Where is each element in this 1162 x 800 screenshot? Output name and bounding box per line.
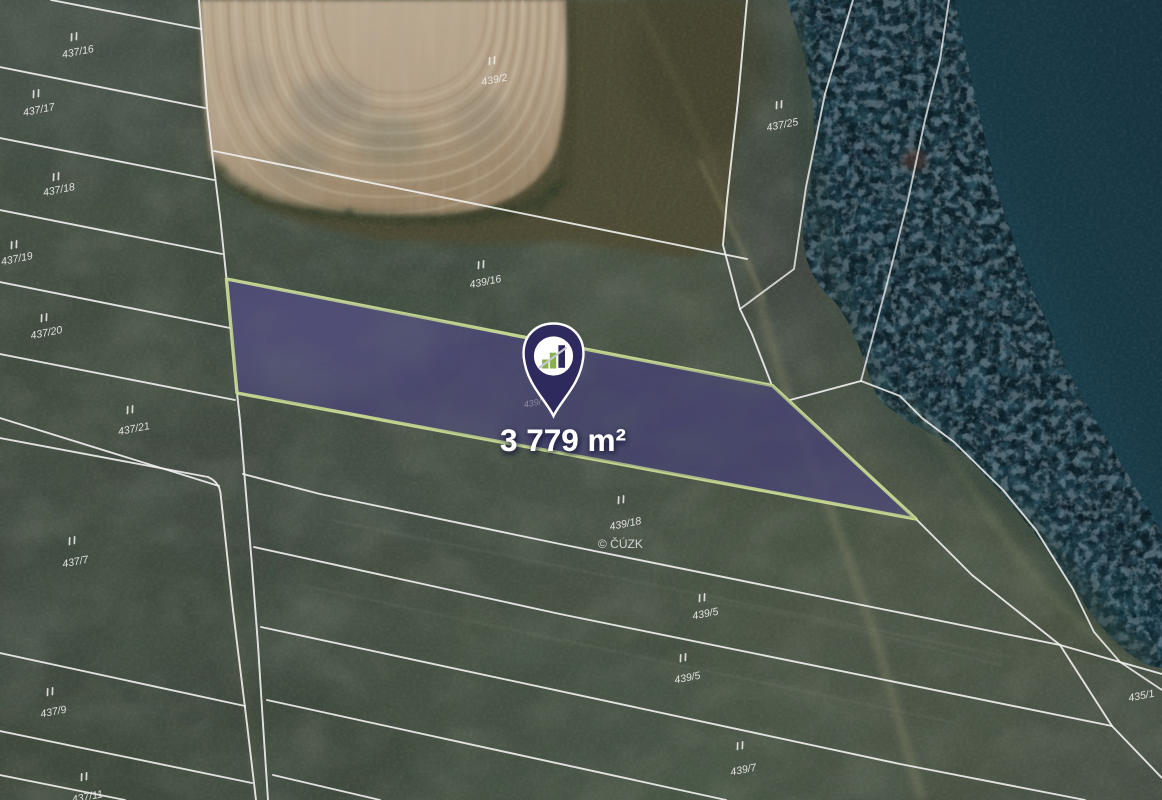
svg-text:3 779 m²: 3 779 m² xyxy=(500,422,626,458)
svg-text:© ČÚZK: © ČÚZK xyxy=(598,536,643,551)
